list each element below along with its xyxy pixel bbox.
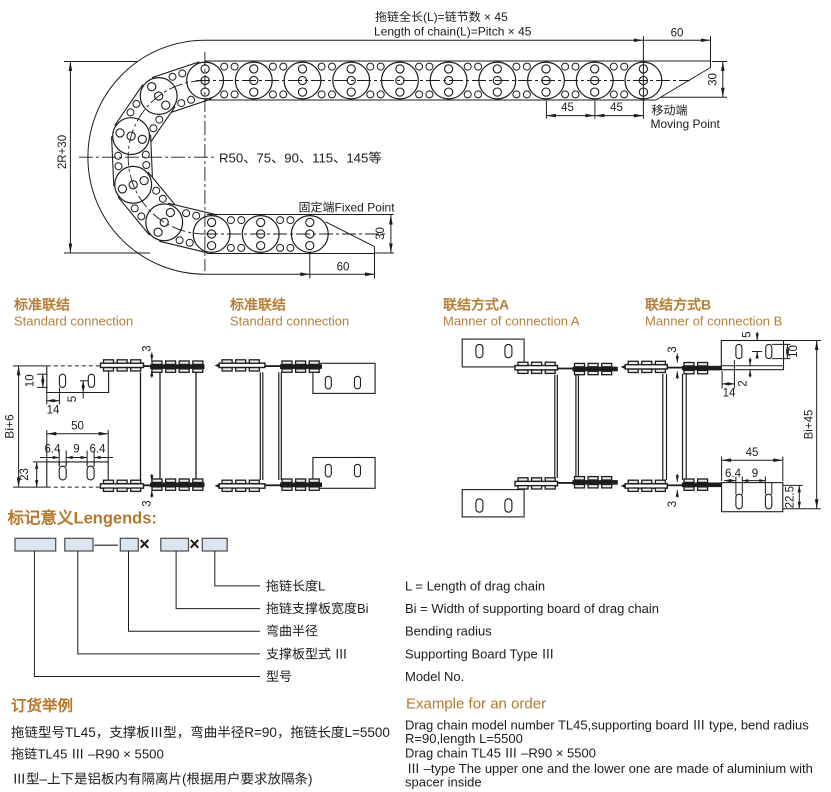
svg-text:标准联结: 标准联结 [13,295,70,315]
svg-text:支撑板型式 Ⅲ: 支撑板型式 Ⅲ [266,643,348,662]
svg-text:3: 3 [142,345,154,351]
svg-text:Length of chain(L)=Pitch × 45: Length of chain(L)=Pitch × 45 [374,25,532,39]
svg-text:10: 10 [788,345,800,358]
svg-text:45: 45 [746,447,759,459]
svg-text:拖链TL45 Ⅲ –R90 × 5500: 拖链TL45 Ⅲ –R90 × 5500 [11,744,164,763]
svg-text:22.5: 22.5 [785,486,797,508]
svg-text:30: 30 [708,73,720,86]
svg-text:×: × [139,534,150,554]
svg-text:拖链长度L: 拖链长度L [266,575,325,594]
svg-text:Supporting Board Type Ⅲ: Supporting Board Type Ⅲ [405,643,554,662]
svg-text:Standard connection: Standard connection [230,314,349,329]
svg-text:拖链全长(L)=链节数 × 45: 拖链全长(L)=链节数 × 45 [375,8,508,25]
svg-text:6.4: 6.4 [725,468,742,480]
svg-text:9: 9 [752,468,758,480]
svg-text:Manner of connection A: Manner of connection A [443,314,580,329]
svg-text:2R+30: 2R+30 [57,135,69,169]
svg-text:5: 5 [67,396,79,402]
svg-text:弯曲半径: 弯曲半径 [266,621,318,640]
svg-text:3: 3 [142,500,154,506]
svg-text:Drag chain TL45 Ⅲ –R90 × 5500: Drag chain TL45 Ⅲ –R90 × 5500 [405,743,596,762]
svg-text:Bi+45: Bi+45 [803,410,815,440]
svg-text:L = Length of drag chain: L = Length of drag chain [405,578,545,593]
svg-text:Moving Point: Moving Point [651,117,721,131]
svg-text:9: 9 [73,444,79,456]
svg-text:型号: 型号 [266,666,292,685]
svg-text:2: 2 [738,380,750,386]
svg-text:订货举例: 订货举例 [11,694,73,716]
svg-text:移动端: 移动端 [652,102,688,119]
svg-text:14: 14 [723,388,736,400]
svg-text:3: 3 [667,346,679,352]
svg-text:50: 50 [71,421,84,433]
svg-text:拖链支撑板宽度Bi: 拖链支撑板宽度Bi [266,598,369,617]
svg-text:Ⅲ型–上下是铝板内有隔离片(根据用户要求放隔条): Ⅲ型–上下是铝板内有隔离片(根据用户要求放隔条) [13,768,313,788]
svg-text:×: × [189,534,200,554]
svg-text:5: 5 [742,331,754,337]
svg-text:30: 30 [375,227,387,240]
svg-text:R50、75、90、115、145等: R50、75、90、115、145等 [219,148,382,167]
svg-text:60: 60 [337,262,350,274]
svg-text:spacer inside: spacer inside [405,775,482,790]
svg-text:Model No.: Model No. [405,669,464,684]
svg-text:14: 14 [47,405,60,417]
svg-text:固定端Fixed Point: 固定端Fixed Point [299,199,396,216]
svg-text:3: 3 [667,501,679,507]
svg-text:联结方式A: 联结方式A [443,295,509,315]
svg-text:联结方式B: 联结方式B [645,295,711,315]
svg-text:Bi+6: Bi+6 [3,414,17,439]
svg-text:45: 45 [610,102,623,114]
svg-text:6.4: 6.4 [45,444,62,456]
svg-text:45: 45 [561,102,574,114]
svg-text:Bending radius: Bending radius [405,624,492,639]
svg-text:23: 23 [19,468,31,481]
svg-text:Bi = Width of supporting board: Bi = Width of supporting board of drag c… [405,601,659,616]
svg-text:6.4: 6.4 [90,444,107,456]
svg-text:标准联结: 标准联结 [229,295,286,315]
svg-text:Example for an order: Example for an order [406,696,546,713]
svg-text:60: 60 [671,28,684,40]
svg-text:10: 10 [25,374,37,387]
svg-text:Manner of connection B: Manner of connection B [645,314,782,329]
svg-text:Standard connection: Standard connection [14,314,133,329]
